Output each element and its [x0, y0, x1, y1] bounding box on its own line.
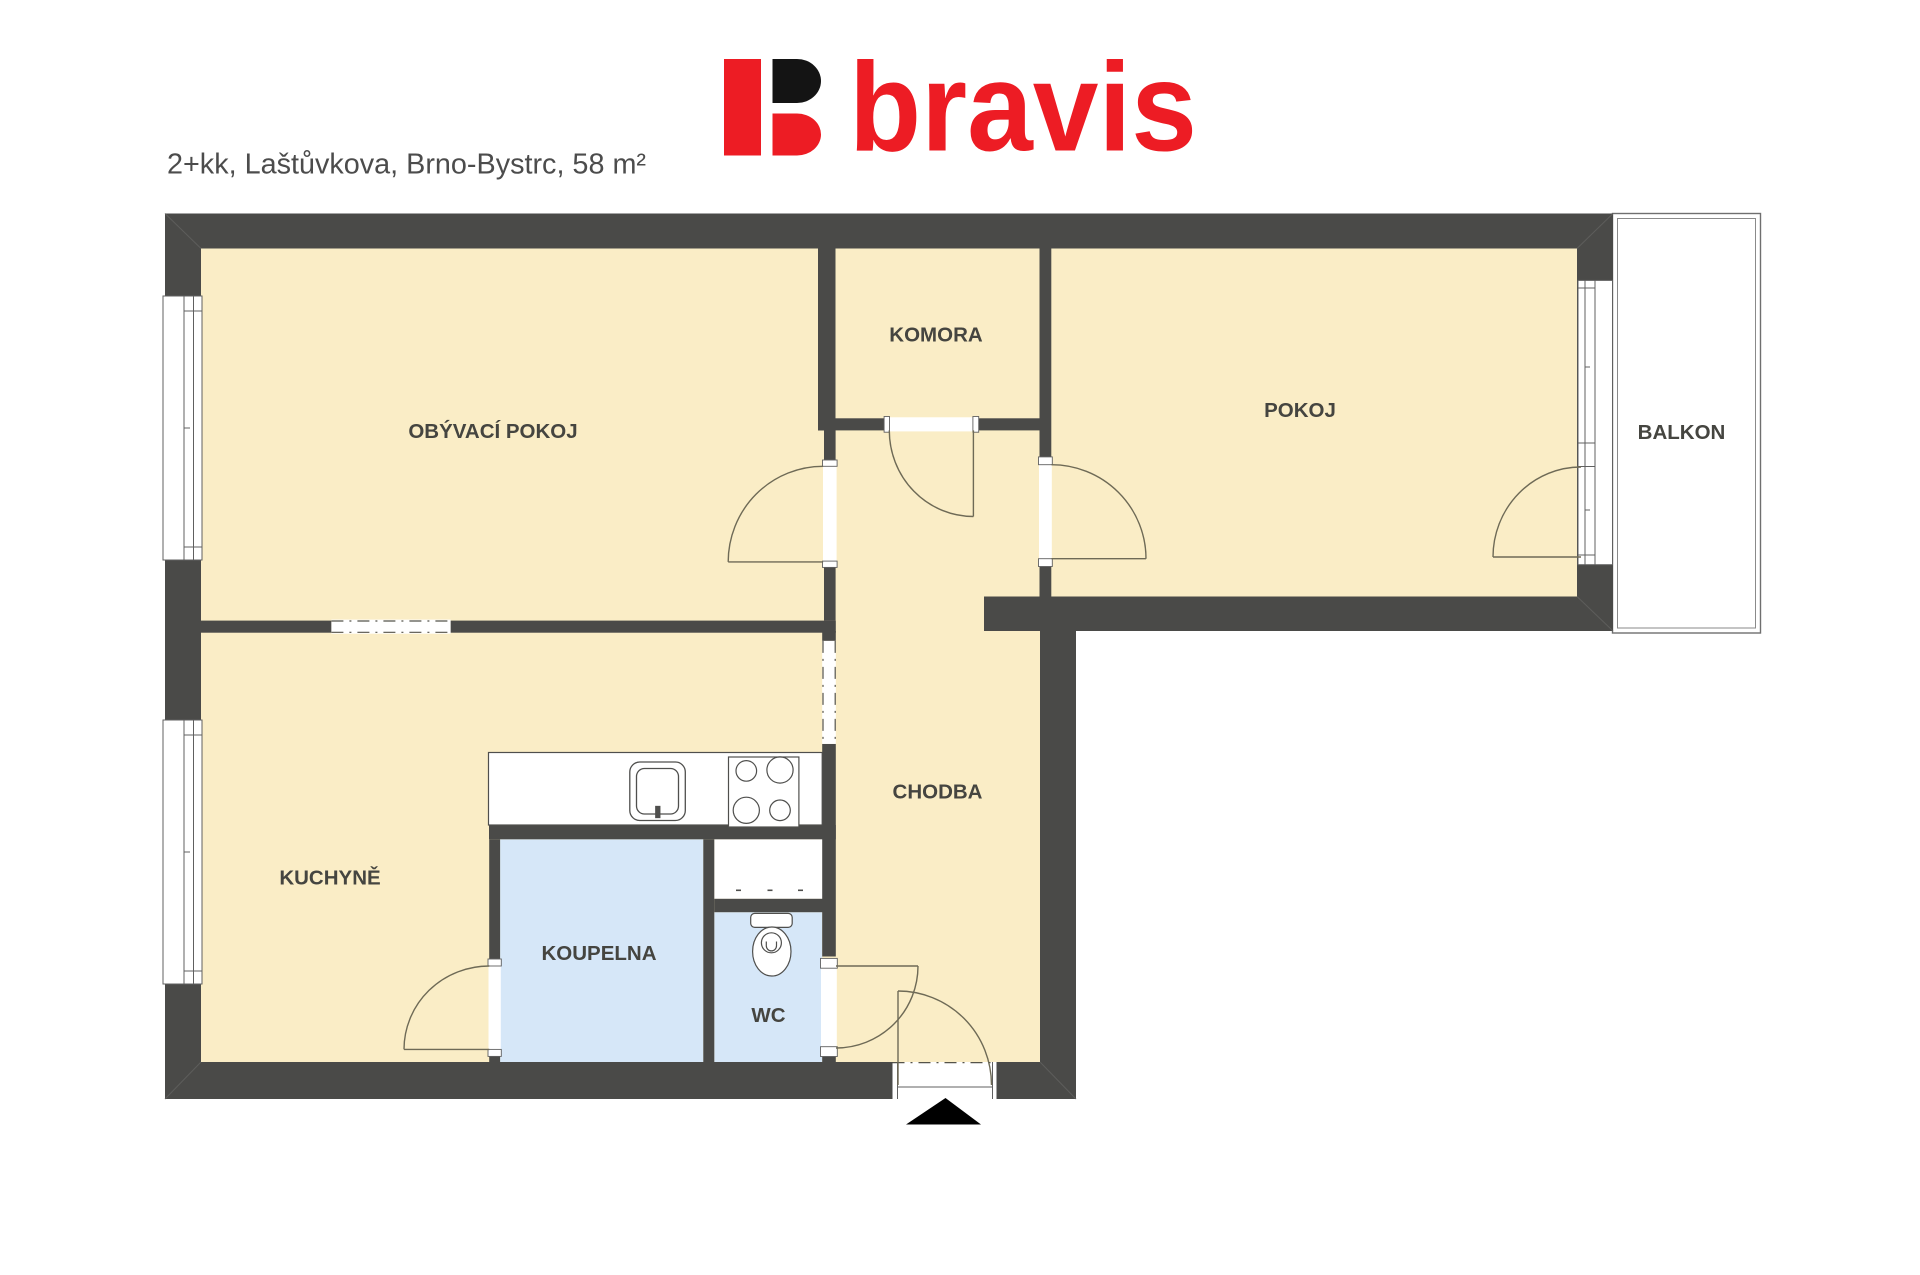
svg-text:POKOJ: POKOJ — [1264, 399, 1336, 422]
svg-text:OBÝVACÍ POKOJ: OBÝVACÍ POKOJ — [408, 419, 577, 443]
svg-text:2+kk, Laštůvkova, Brno-Bystrc,: 2+kk, Laštůvkova, Brno-Bystrc, 58 m² — [167, 149, 646, 181]
svg-text:CHODBA: CHODBA — [893, 781, 983, 804]
svg-text:KUCHYNĚ: KUCHYNĚ — [279, 866, 380, 890]
svg-text:KOMORA: KOMORA — [889, 324, 983, 347]
svg-text:WC: WC — [751, 1004, 785, 1027]
svg-text:KOUPELNA: KOUPELNA — [541, 942, 656, 965]
svg-text:BALKON: BALKON — [1638, 421, 1726, 444]
svg-text:bravis: bravis — [849, 37, 1197, 178]
